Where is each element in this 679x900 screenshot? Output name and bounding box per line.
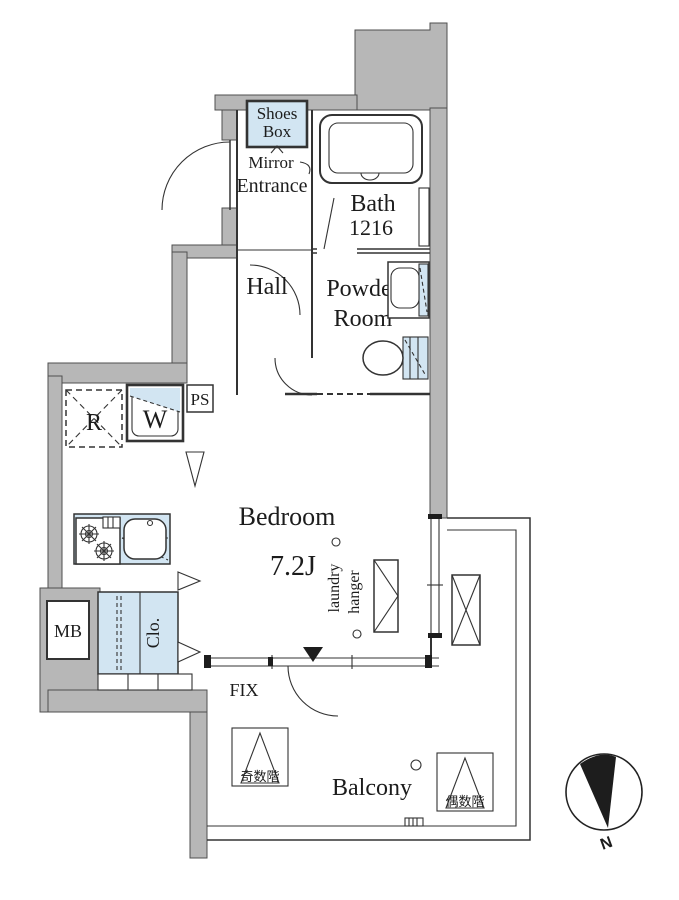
bedroom-label: Bedroom: [239, 502, 336, 531]
even-floor-hatch-marker: 偶数階: [437, 753, 493, 811]
fix-window-label: FIX: [229, 680, 258, 700]
entrance-door: [162, 140, 230, 210]
laundry-hanger-label-1: laundry: [326, 564, 343, 613]
laundry-hanger: laundry hanger: [326, 538, 363, 638]
balcony-fixture-circle: [411, 760, 421, 770]
bath-label-1: Bath: [350, 191, 395, 217]
shoes-box-label-2: Box: [263, 122, 292, 141]
compass-icon: N: [566, 754, 642, 854]
washer-icon: W: [127, 385, 183, 441]
toilet-icon: [363, 337, 428, 379]
shoes-box: Shoes Box: [247, 101, 307, 147]
hall-label: Hall: [246, 274, 288, 300]
closet-door-mark-bottom: [178, 642, 200, 662]
balcony-label: Balcony: [332, 775, 412, 801]
bath-label-2: 1216: [349, 215, 393, 240]
powder-room-label-2: Room: [334, 306, 393, 332]
odd-floor-label: 奇数階: [240, 769, 279, 784]
louver-panel: [98, 674, 192, 690]
floor-plan: Shoes Box Mirror Entrance Bath 1216 Hall…: [0, 0, 679, 900]
bath-door: [324, 198, 334, 249]
washer-label: W: [143, 405, 168, 434]
refrigerator-label: R: [86, 410, 102, 436]
bottom-window-wall: [204, 655, 439, 669]
bedroom-size-label: 7.2J: [270, 551, 316, 582]
entrance-label: Entrance: [236, 175, 307, 197]
door-swing-mark: [186, 452, 204, 486]
closet-label: Clo.: [143, 618, 163, 649]
bedroom-side-window: [427, 514, 443, 666]
north-label: N: [598, 834, 615, 854]
refrigerator-space: R: [66, 390, 122, 447]
balcony-door-arc: [288, 666, 338, 716]
shoes-box-label-1: Shoes: [257, 104, 298, 123]
ac-indoor-unit-icon: [374, 560, 398, 632]
pipe-space: PS: [187, 385, 213, 412]
pipe-space-label: PS: [191, 390, 210, 409]
mirror-label: Mirror: [248, 153, 294, 172]
kitchen-sink-icon: [124, 519, 166, 559]
closet: Clo.: [98, 592, 178, 674]
even-floor-label: 偶数階: [445, 794, 484, 809]
balcony-drain-vent: [405, 818, 423, 826]
closet-door-mark-top: [178, 572, 200, 590]
powder-room-door-arc: [275, 358, 312, 395]
meter-box: MB: [47, 601, 89, 659]
laundry-hanger-label-2: hanger: [346, 570, 363, 614]
floor-plan-page: Shoes Box Mirror Entrance Bath 1216 Hall…: [0, 0, 679, 900]
meter-box-label: MB: [54, 621, 82, 641]
kitchen-counter: [74, 514, 170, 564]
odd-floor-hatch-marker: 奇数階: [232, 728, 288, 786]
stove-icon: [76, 517, 120, 564]
ac-outdoor-unit-icon: [452, 575, 480, 645]
window-center-marker: [303, 647, 323, 662]
vanity-sink-icon: [388, 262, 429, 318]
